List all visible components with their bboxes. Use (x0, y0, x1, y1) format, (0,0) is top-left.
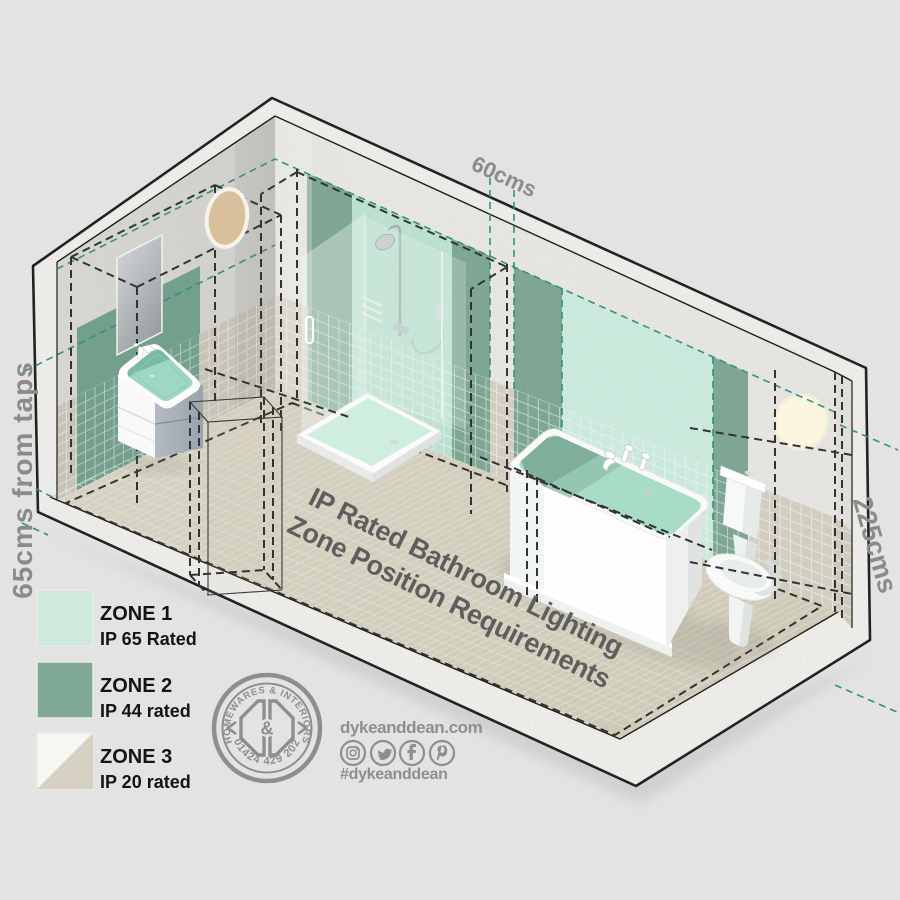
svg-text:ZONE 3: ZONE 3 (100, 746, 172, 768)
svg-text:IP 44 rated: IP 44 rated (100, 701, 191, 721)
svg-text:65cms from taps: 65cms from taps (7, 361, 38, 599)
svg-text:&: & (261, 719, 274, 739)
svg-text:ZONE 1: ZONE 1 (100, 603, 172, 625)
svg-text:IP 65 Rated: IP 65 Rated (100, 629, 197, 649)
svg-text:dykeanddean.com: dykeanddean.com (340, 718, 483, 737)
svg-text:ZONE 2: ZONE 2 (100, 675, 172, 697)
svg-text:IP 20 rated: IP 20 rated (100, 772, 191, 792)
svg-text:#dykeanddean: #dykeanddean (340, 766, 448, 783)
